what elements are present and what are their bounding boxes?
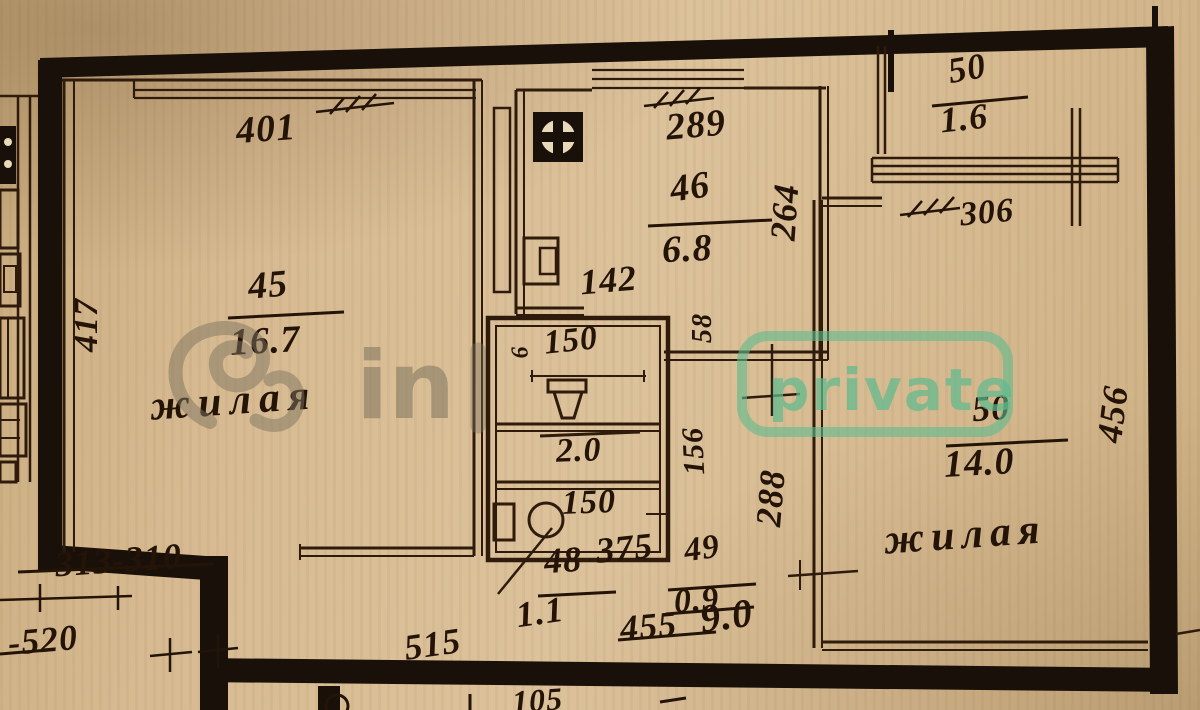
dim-hall-bottom: 9.0 xyxy=(697,593,755,640)
dim-kitchen-right: 264 xyxy=(765,182,805,241)
dim-room50-right: 456 xyxy=(1091,384,1134,445)
balcony-area: 1.6 xyxy=(938,98,990,139)
stove-icon xyxy=(533,112,583,162)
room50-name: жилая xyxy=(883,508,1048,561)
room50-number: 50 xyxy=(971,389,1011,428)
hall-number: 48 xyxy=(543,541,583,580)
dim-hall-bottom-struck: 455 xyxy=(619,606,679,647)
kitchen-number: 46 xyxy=(668,165,713,208)
outer-thick-walls xyxy=(38,6,1178,710)
hall-area: 1.1 xyxy=(514,591,567,633)
dim-duct: 58 xyxy=(689,313,717,343)
room45-number: 45 xyxy=(246,264,289,305)
dimension-ticks-center xyxy=(742,344,800,416)
bath-area: 2.0 xyxy=(555,433,602,469)
dim-hall-top: 375 xyxy=(594,527,654,569)
kitchen-area: 6.8 xyxy=(661,229,713,270)
toilet-icon xyxy=(548,380,586,392)
dim-edge-partial: 105 xyxy=(511,682,564,710)
room45-name: жилая xyxy=(149,374,319,428)
toilet-bowl-icon xyxy=(554,392,582,418)
dim-balcony-width: 306 xyxy=(959,194,1016,233)
room50-walls xyxy=(788,46,1200,650)
dim-wc-width: 150 xyxy=(542,321,599,360)
dim-room45-top: 401 xyxy=(235,108,298,150)
floor-plan-page: 401 417 45 16.7 жилая 289 46 6.8 264 142… xyxy=(0,0,1200,710)
sink-icon xyxy=(524,238,558,284)
dim-kitchen-top: 289 xyxy=(664,103,727,146)
dimension-ticks-bottom-left xyxy=(0,584,686,710)
room50-area: 14.0 xyxy=(943,442,1015,484)
vent-shaft xyxy=(494,108,510,292)
dim-bath-width: 150 xyxy=(561,485,616,521)
dim-room45-left: 417 xyxy=(70,298,104,352)
storage-number: 49 xyxy=(682,530,722,569)
neighbor-unit-fixtures xyxy=(0,96,38,482)
dim-hall-right: 288 xyxy=(750,468,791,528)
dim-bottom-left-pair: 313-310 xyxy=(54,538,183,583)
floorplan-linework xyxy=(0,0,1200,710)
room45-area: 16.7 xyxy=(229,320,301,362)
basin-icon xyxy=(529,503,563,537)
dim-wc-side: 6 xyxy=(508,344,533,359)
dim-mid-right: 156 xyxy=(678,426,710,476)
balcony-number: 50 xyxy=(945,47,989,89)
dim-bottom-left: -520 xyxy=(7,619,80,661)
dim-hall-width: 515 xyxy=(402,622,463,666)
dim-kitchen-inner: 142 xyxy=(579,260,639,301)
